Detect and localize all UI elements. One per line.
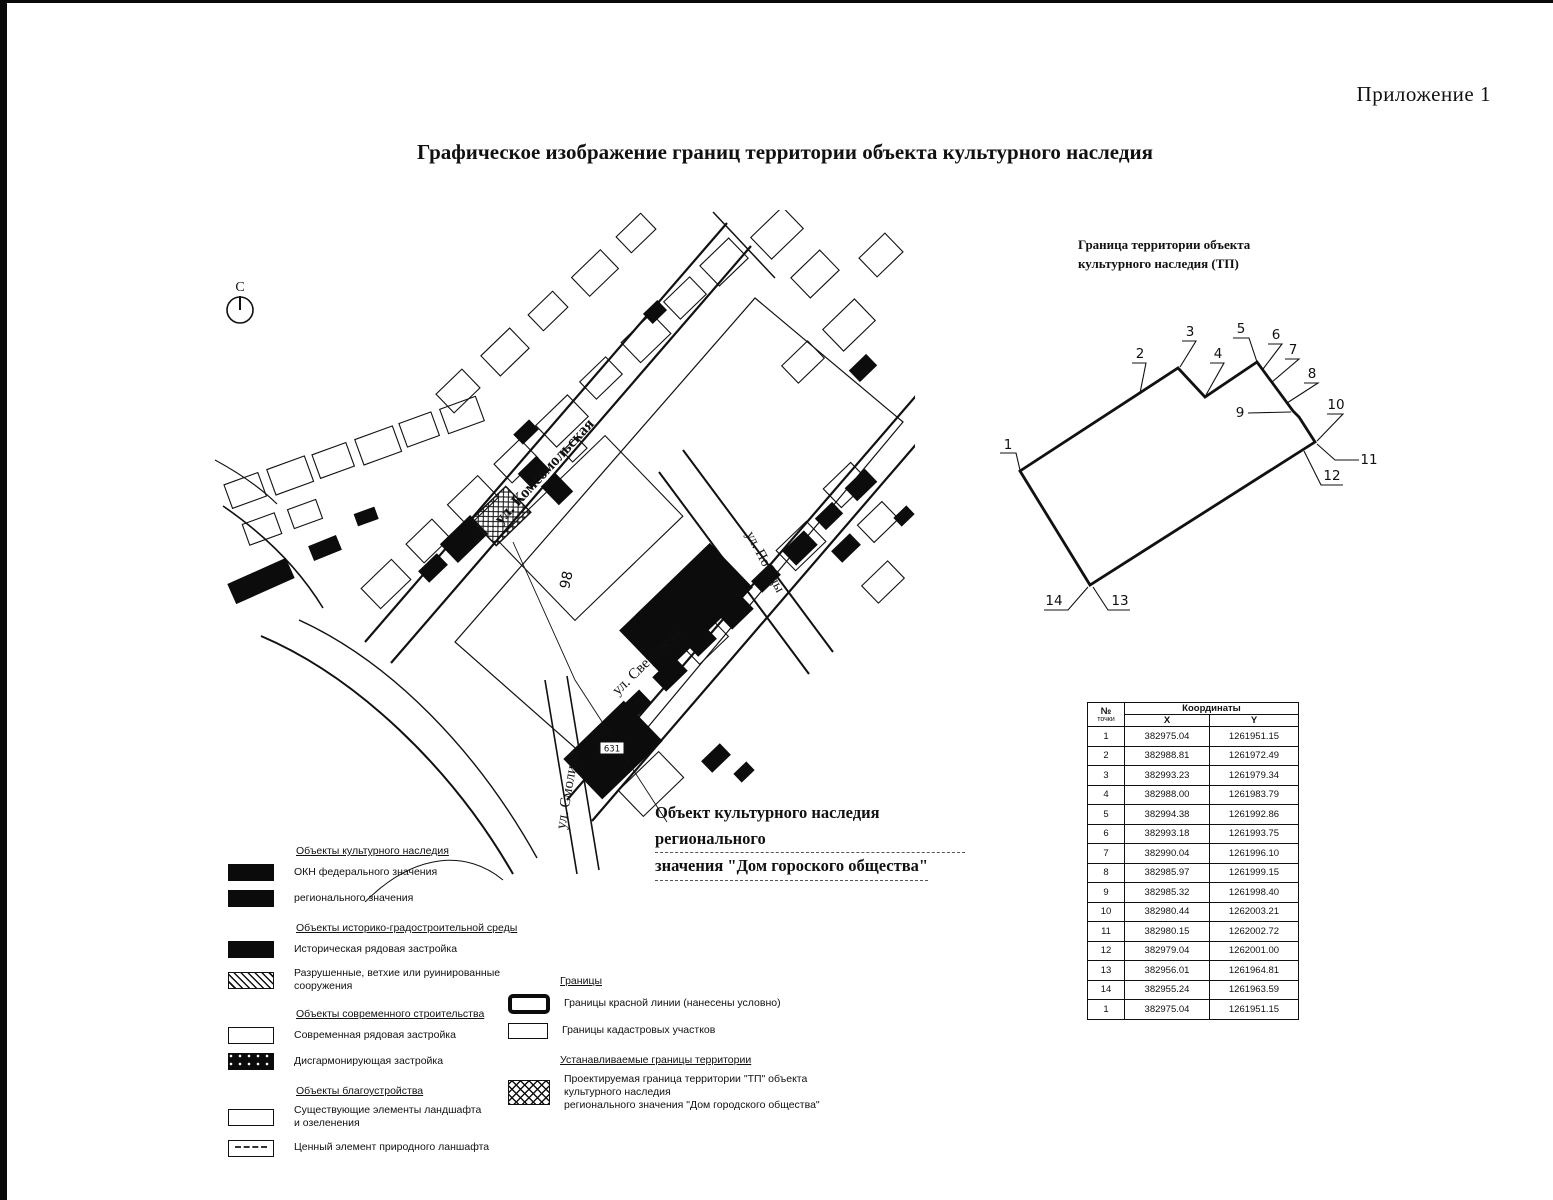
legend-item: Границы кадастровых участков — [508, 1023, 848, 1039]
svg-text:10: 10 — [1327, 397, 1344, 413]
legend-item: ОКН федерального значения — [228, 864, 528, 881]
svg-text:14: 14 — [1045, 593, 1062, 609]
annotation-line-1: Объект культурного наследия региональног… — [655, 800, 965, 853]
table-row: 2382988.811261972.49 — [1088, 746, 1299, 766]
page-title: Графическое изображение границ территори… — [270, 140, 1300, 165]
point-labels: 1 2 3 4 5 6 7 8 9 10 11 12 13 14 — [1004, 321, 1378, 609]
table-row: 14382955.241261963.59 — [1088, 980, 1299, 1000]
table-row: 1382975.041261951.15 — [1088, 1000, 1299, 1020]
swatch-cadastral-icon — [508, 1023, 548, 1039]
legend-header-borders: Границы — [560, 975, 848, 987]
legend-item: Границы красной линии (нанесены условно) — [508, 994, 848, 1014]
svg-text:13: 13 — [1111, 593, 1128, 609]
table-row: 3382993.231261979.34 — [1088, 766, 1299, 786]
svg-text:3: 3 — [1186, 324, 1195, 340]
swatch-landscape-elements-icon — [228, 1109, 274, 1126]
legend-item: Историческая рядовая застройка — [228, 941, 528, 958]
boundary-diagram-title: Граница территории объекта культурного н… — [1078, 236, 1328, 274]
boundary-polygon — [1020, 362, 1315, 585]
table-row: 11382980.151262002.72 — [1088, 922, 1299, 942]
table-row: 6382993.181261993.75 — [1088, 824, 1299, 844]
table-row: 9382985.321261998.40 — [1088, 883, 1299, 903]
legend-item: Дисгармонирующая застройка — [228, 1053, 528, 1070]
boundary-diagram: 1 2 3 4 5 6 7 8 9 10 11 12 13 14 — [990, 305, 1390, 640]
legend-left-column: Объекты культурного наследия ОКН федерал… — [228, 845, 528, 1166]
building-number-98: 98 — [557, 570, 576, 591]
swatch-modern-row-icon — [228, 1027, 274, 1044]
swatch-historic-row-icon — [228, 941, 274, 958]
table-row: 7382990.041261996.10 — [1088, 844, 1299, 864]
svg-text:631: 631 — [604, 745, 620, 755]
legend-item: регионального значения — [228, 890, 528, 907]
buildings-outline — [224, 210, 904, 816]
north-label: С — [235, 280, 244, 295]
col-header-y: Y — [1210, 715, 1299, 727]
point-leader-lines — [1000, 338, 1359, 610]
building-number-631: 631 — [600, 742, 624, 755]
table-row: 4382988.001261983.79 — [1088, 785, 1299, 805]
svg-text:6: 6 — [1272, 327, 1281, 343]
swatch-valuable-landscape-icon — [228, 1140, 274, 1157]
svg-text:1: 1 — [1004, 437, 1013, 453]
svg-text:12: 12 — [1323, 468, 1340, 484]
annotation-line-2: значения "Дом гороского общества" — [655, 853, 928, 881]
svg-text:7: 7 — [1289, 342, 1298, 358]
svg-text:4: 4 — [1214, 346, 1223, 362]
legend-header-established: Устанавливаемые границы территории — [560, 1054, 848, 1066]
coordinates-table: № точки Координаты X Y 1382975.041261951… — [1087, 702, 1299, 1020]
legend-item: Существующие элементы ландшафта и озелен… — [228, 1104, 528, 1130]
legend-right-column: Границы Границы красной линии (нанесены … — [508, 975, 848, 1121]
heritage-object-annotation: Объект культурного наследия региональног… — [655, 800, 965, 881]
swatch-ruined-icon — [228, 972, 274, 989]
buildings-filled — [227, 300, 914, 799]
appendix-label: Приложение 1 — [1357, 82, 1491, 107]
legend-header-historic-env: Объекты историко-градостроительной среды — [296, 922, 528, 934]
legend-item: Современная рядовая застройка — [228, 1027, 528, 1044]
scan-border-left — [0, 0, 7, 1200]
legend-item: Ценный элемент природного ланшафта — [228, 1140, 528, 1157]
legend-header-landscaping: Объекты благоустройства — [296, 1085, 528, 1097]
swatch-okn-regional-icon — [228, 890, 274, 907]
legend-item: Проектируемая граница территории "ТП" об… — [508, 1073, 848, 1112]
table-row: 12382979.041262001.00 — [1088, 941, 1299, 961]
swatch-red-line-icon — [508, 994, 550, 1014]
col-header-x: X — [1125, 715, 1210, 727]
table-row: 13382956.011261964.81 — [1088, 961, 1299, 981]
scan-border-top — [0, 0, 1553, 3]
svg-text:2: 2 — [1136, 346, 1145, 362]
document-page: Приложение 1 Графическое изображение гра… — [0, 0, 1553, 1200]
table-row: 5382994.381261992.86 — [1088, 805, 1299, 825]
legend-item: Разрушенные, ветхие или руинированные со… — [228, 967, 528, 993]
street-label-komsomolskaya: ул. Комсомольская — [492, 415, 598, 527]
table-row: 8382985.971261999.15 — [1088, 863, 1299, 883]
col-header-point: № точки — [1088, 703, 1125, 727]
swatch-okn-federal-icon — [228, 864, 274, 881]
swatch-disharmonious-icon — [228, 1053, 274, 1070]
table-row: 1382975.041261951.15 — [1088, 727, 1299, 747]
legend-header-heritage: Объекты культурного наследия — [296, 845, 528, 857]
table-row: 10382980.441262003.21 — [1088, 902, 1299, 922]
col-header-coords: Координаты — [1125, 703, 1299, 715]
svg-text:9: 9 — [1236, 405, 1245, 421]
legend-header-modern: Объекты современного строительства — [296, 1008, 528, 1020]
swatch-projected-boundary-icon — [508, 1080, 550, 1105]
north-arrow-icon: С — [227, 280, 253, 323]
svg-text:11: 11 — [1360, 452, 1377, 468]
svg-text:8: 8 — [1308, 366, 1317, 382]
svg-text:5: 5 — [1237, 321, 1246, 337]
